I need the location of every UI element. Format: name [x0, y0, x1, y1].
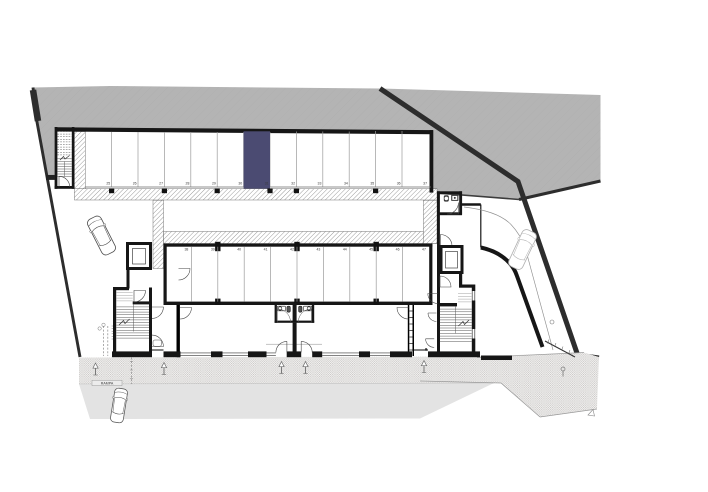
svg-text:39: 39 [211, 247, 215, 251]
svg-text:25: 25 [106, 182, 110, 186]
svg-text:40: 40 [237, 247, 241, 251]
svg-text:36: 36 [397, 182, 401, 186]
svg-text:31: 31 [265, 182, 269, 186]
svg-text:29: 29 [212, 182, 216, 186]
svg-text:33: 33 [318, 182, 322, 186]
svg-text:30: 30 [238, 182, 242, 186]
svg-text:47: 47 [422, 247, 426, 251]
svg-text:43: 43 [316, 247, 320, 251]
svg-text:32: 32 [291, 182, 295, 186]
svg-text:38: 38 [184, 247, 188, 251]
svg-text:45: 45 [369, 247, 373, 251]
svg-text:RAMPA: RAMPA [101, 382, 114, 386]
svg-text:44: 44 [343, 247, 347, 251]
svg-text:35: 35 [370, 182, 374, 186]
svg-text:46: 46 [396, 247, 400, 251]
svg-text:37: 37 [423, 182, 427, 186]
svg-text:26: 26 [133, 182, 137, 186]
svg-text:27: 27 [159, 182, 163, 186]
svg-text:41: 41 [264, 247, 268, 251]
svg-text:42: 42 [290, 247, 294, 251]
svg-text:34: 34 [344, 182, 348, 186]
svg-text:28: 28 [186, 182, 190, 186]
